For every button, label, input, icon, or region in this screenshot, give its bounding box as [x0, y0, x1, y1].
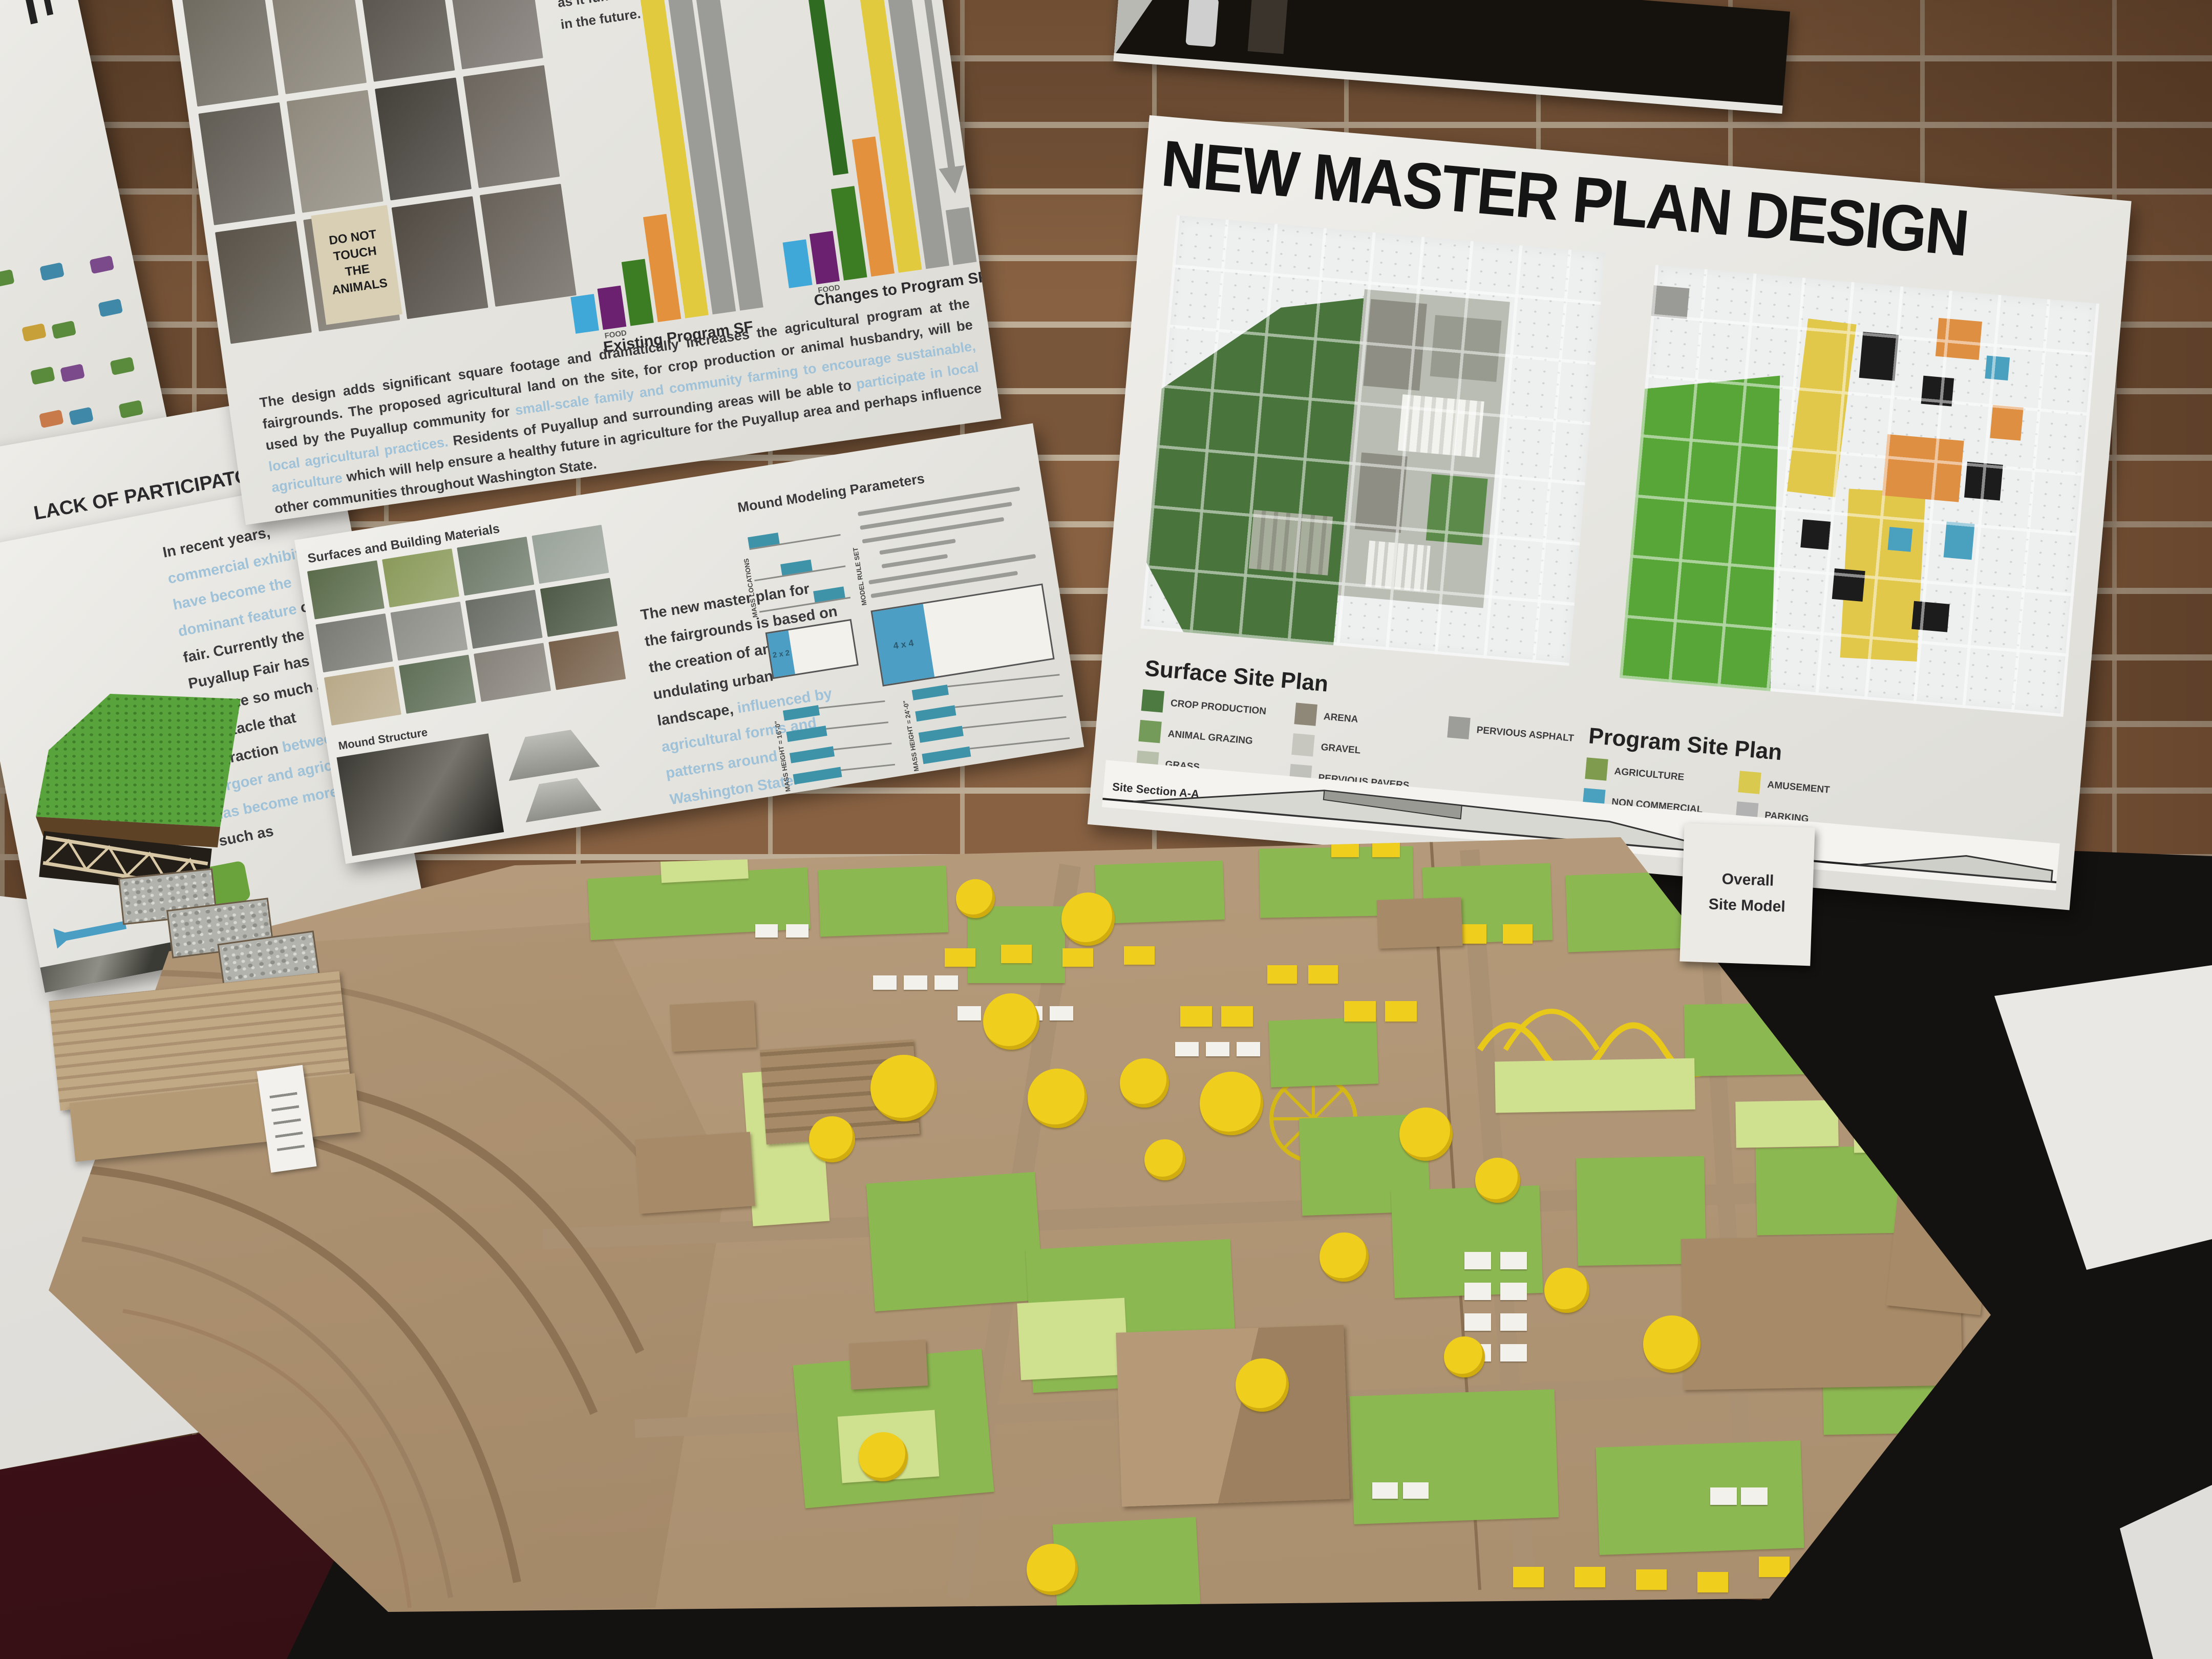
model-ride [1144, 1139, 1185, 1180]
model-white-car [1500, 1313, 1527, 1331]
model-yellow-booth [1575, 1567, 1605, 1587]
model-yellow-booth [1124, 946, 1155, 965]
model-building [670, 1001, 757, 1052]
model-ride [1320, 1232, 1369, 1282]
model-ride [870, 1055, 937, 1121]
card-text: Overall [1682, 869, 1813, 891]
exhibit-photo: LACK OF PARTICIPATORY EDUCATIONAL EXPERI… [0, 0, 2212, 1659]
overall-site-model-card: Overall Site Model [1679, 823, 1815, 966]
model-white-car [904, 975, 927, 990]
model-white-car [1050, 1006, 1073, 1020]
model-green-mound [1596, 1440, 1804, 1555]
model-green-mound [1756, 1145, 1906, 1235]
model-green-mound [818, 866, 948, 937]
model-green-mound [1269, 1017, 1378, 1087]
model-ride [1236, 1358, 1289, 1412]
model-white-car [873, 975, 897, 990]
model-ride [1475, 1158, 1520, 1203]
model-ride [983, 993, 1039, 1050]
model-building [1886, 1091, 2003, 1315]
model-building [1376, 897, 1462, 949]
model-white-car [1464, 1252, 1491, 1269]
model-white-car [1372, 1482, 1398, 1499]
model-yellow-booth [1221, 1006, 1253, 1027]
model-yellow-booth [1636, 1569, 1667, 1590]
model-ride [1028, 1069, 1087, 1128]
model-white-car [1237, 1042, 1260, 1056]
model-pavilion [1116, 1325, 1350, 1506]
model-yellow-booth [1513, 1567, 1544, 1587]
model-yellow-booth [1372, 840, 1400, 857]
model-white-car [1403, 1482, 1429, 1499]
model-scenery [0, 0, 2212, 1659]
model-yellow-booth [945, 948, 975, 967]
model-white-car [1710, 1487, 1737, 1505]
model-white-car [1500, 1344, 1527, 1362]
model-ride [956, 879, 995, 918]
model-yellow-booth [1503, 924, 1533, 944]
model-ride [1200, 1072, 1263, 1135]
model-yellow-booth [1331, 840, 1359, 857]
model-yellow-booth [1385, 1001, 1417, 1022]
model-white-car [1741, 1487, 1768, 1505]
model-building [635, 1132, 755, 1214]
model-green-mound [1684, 1003, 1808, 1076]
model-yellow-booth [1344, 1001, 1376, 1022]
model-ride [1643, 1315, 1700, 1373]
model-green-mound [866, 1172, 1044, 1311]
model-yellow-booth [1759, 1557, 1790, 1577]
model-white-car [1175, 1042, 1199, 1056]
model-white-car [1464, 1313, 1491, 1331]
model-ride [1399, 1108, 1453, 1161]
model-light-green-mound [1017, 1298, 1129, 1380]
model-white-car [1206, 1042, 1229, 1056]
model-ride [1061, 892, 1115, 946]
model-ride [1444, 1336, 1485, 1377]
model-yellow-booth [1180, 1006, 1212, 1027]
model-ride [1027, 1544, 1078, 1595]
site-model-board [0, 0, 2212, 1659]
model-white-car [1464, 1283, 1491, 1300]
model-building [849, 1339, 928, 1390]
model-light-green-mound [1495, 1058, 1695, 1113]
model-ride [1120, 1058, 1169, 1108]
model-light-green-mound [660, 840, 749, 883]
model-white-car [1500, 1283, 1527, 1300]
model-yellow-booth [1267, 965, 1297, 984]
model-white-car [958, 1006, 981, 1020]
model-yellow-booth [1697, 1572, 1728, 1592]
model-ride [1544, 1268, 1589, 1313]
model-ride [809, 1116, 855, 1162]
model-white-car [786, 924, 809, 938]
model-light-green-mound [1853, 1090, 1946, 1153]
model-green-mound [1350, 1389, 1559, 1524]
model-yellow-booth [1308, 965, 1338, 984]
model-white-car [755, 924, 778, 938]
model-white-car [934, 975, 958, 990]
model-yellow-booth [1062, 948, 1093, 967]
model-white-car [1500, 1252, 1527, 1269]
model-ride [859, 1432, 908, 1481]
card-text: Site Model [1682, 895, 1813, 917]
model-green-mound [1391, 1185, 1543, 1298]
model-light-green-mound [1735, 1100, 1839, 1147]
model-yellow-booth [1001, 945, 1032, 963]
label-card-text-lines [269, 1087, 305, 1151]
